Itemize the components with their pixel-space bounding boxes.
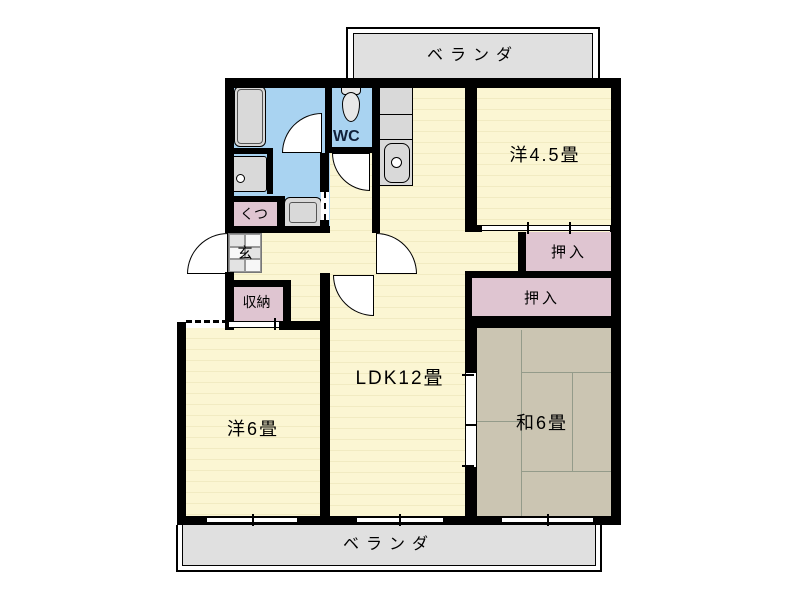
sliding-door-tick [569, 222, 571, 234]
japanese6-label: 和6畳 [477, 414, 607, 432]
shoes-label: くつ [230, 207, 278, 221]
wall-shoes-right [277, 196, 285, 233]
sliding-door-japanese6 [465, 373, 477, 467]
wall-closet-upper-left [518, 232, 526, 272]
sliding-door-western45 [482, 225, 610, 231]
genkan-label: 玄 [228, 246, 262, 261]
tatami-line [521, 471, 612, 472]
window-tick [547, 514, 549, 526]
western6-label: 洋6畳 [186, 420, 320, 438]
washroom-folding-door [321, 192, 329, 220]
wall-ldk-japanese-b [465, 467, 477, 516]
veranda-top-label: ベランダ [427, 48, 519, 64]
wall-closet-divider [465, 271, 621, 278]
tatami-line [521, 372, 612, 373]
wall-storage-right [283, 280, 291, 322]
dashed-eaves-line [186, 320, 228, 323]
washbasin-icon [231, 156, 267, 192]
wall-storage-top [225, 280, 291, 287]
window-tick [252, 514, 254, 526]
wall-shoes-top [225, 196, 285, 202]
wall-western45-left [465, 82, 477, 232]
closet-upper-label: 押入 [526, 245, 612, 260]
veranda-bottom: ベランダ [182, 525, 596, 566]
wall-western6-ldk [320, 273, 330, 516]
wall-western45-bottom-b [610, 225, 621, 232]
wc-label: WC [333, 129, 360, 145]
sliding-door-tick [274, 318, 276, 330]
veranda-top: ベランダ [353, 33, 593, 78]
veranda-bottom-label: ベランダ [343, 537, 435, 553]
closet-lower-label: 押入 [472, 291, 612, 306]
sliding-door-storage [229, 321, 279, 328]
floorplan-canvas: ベランダ ベランダ [0, 0, 800, 600]
wall-right [611, 78, 621, 525]
washing-machine-icon [284, 197, 322, 228]
storage-label: 収納 [230, 295, 283, 309]
ldk-label: LDK12畳 [335, 369, 465, 388]
folding-door-dash [324, 192, 326, 220]
sliding-door-tick [465, 424, 477, 426]
western45-label: 洋4.5畳 [480, 146, 610, 164]
wall-top [225, 78, 621, 88]
kitchen-counter-icon [379, 84, 413, 186]
window-tick [399, 514, 401, 526]
wall-bath-wc [325, 82, 332, 153]
wall-ldk-japanese-a [465, 328, 477, 373]
entrance-door-swing-arc [187, 233, 228, 274]
wall-western45-bottom-a [465, 225, 482, 232]
wall-washroom-right-a [320, 153, 329, 192]
kitchen-sink-icon [384, 143, 410, 183]
sliding-door-tick [527, 222, 529, 234]
wall-japanese6-top [465, 316, 621, 328]
wall-wc-bottom [325, 147, 372, 153]
wall-kitchen-corridor [372, 82, 380, 233]
wall-left-lower [177, 322, 186, 525]
sliding-door-tick [462, 465, 474, 467]
wall-basin-nook [267, 148, 273, 194]
bathtub-icon [234, 86, 266, 147]
